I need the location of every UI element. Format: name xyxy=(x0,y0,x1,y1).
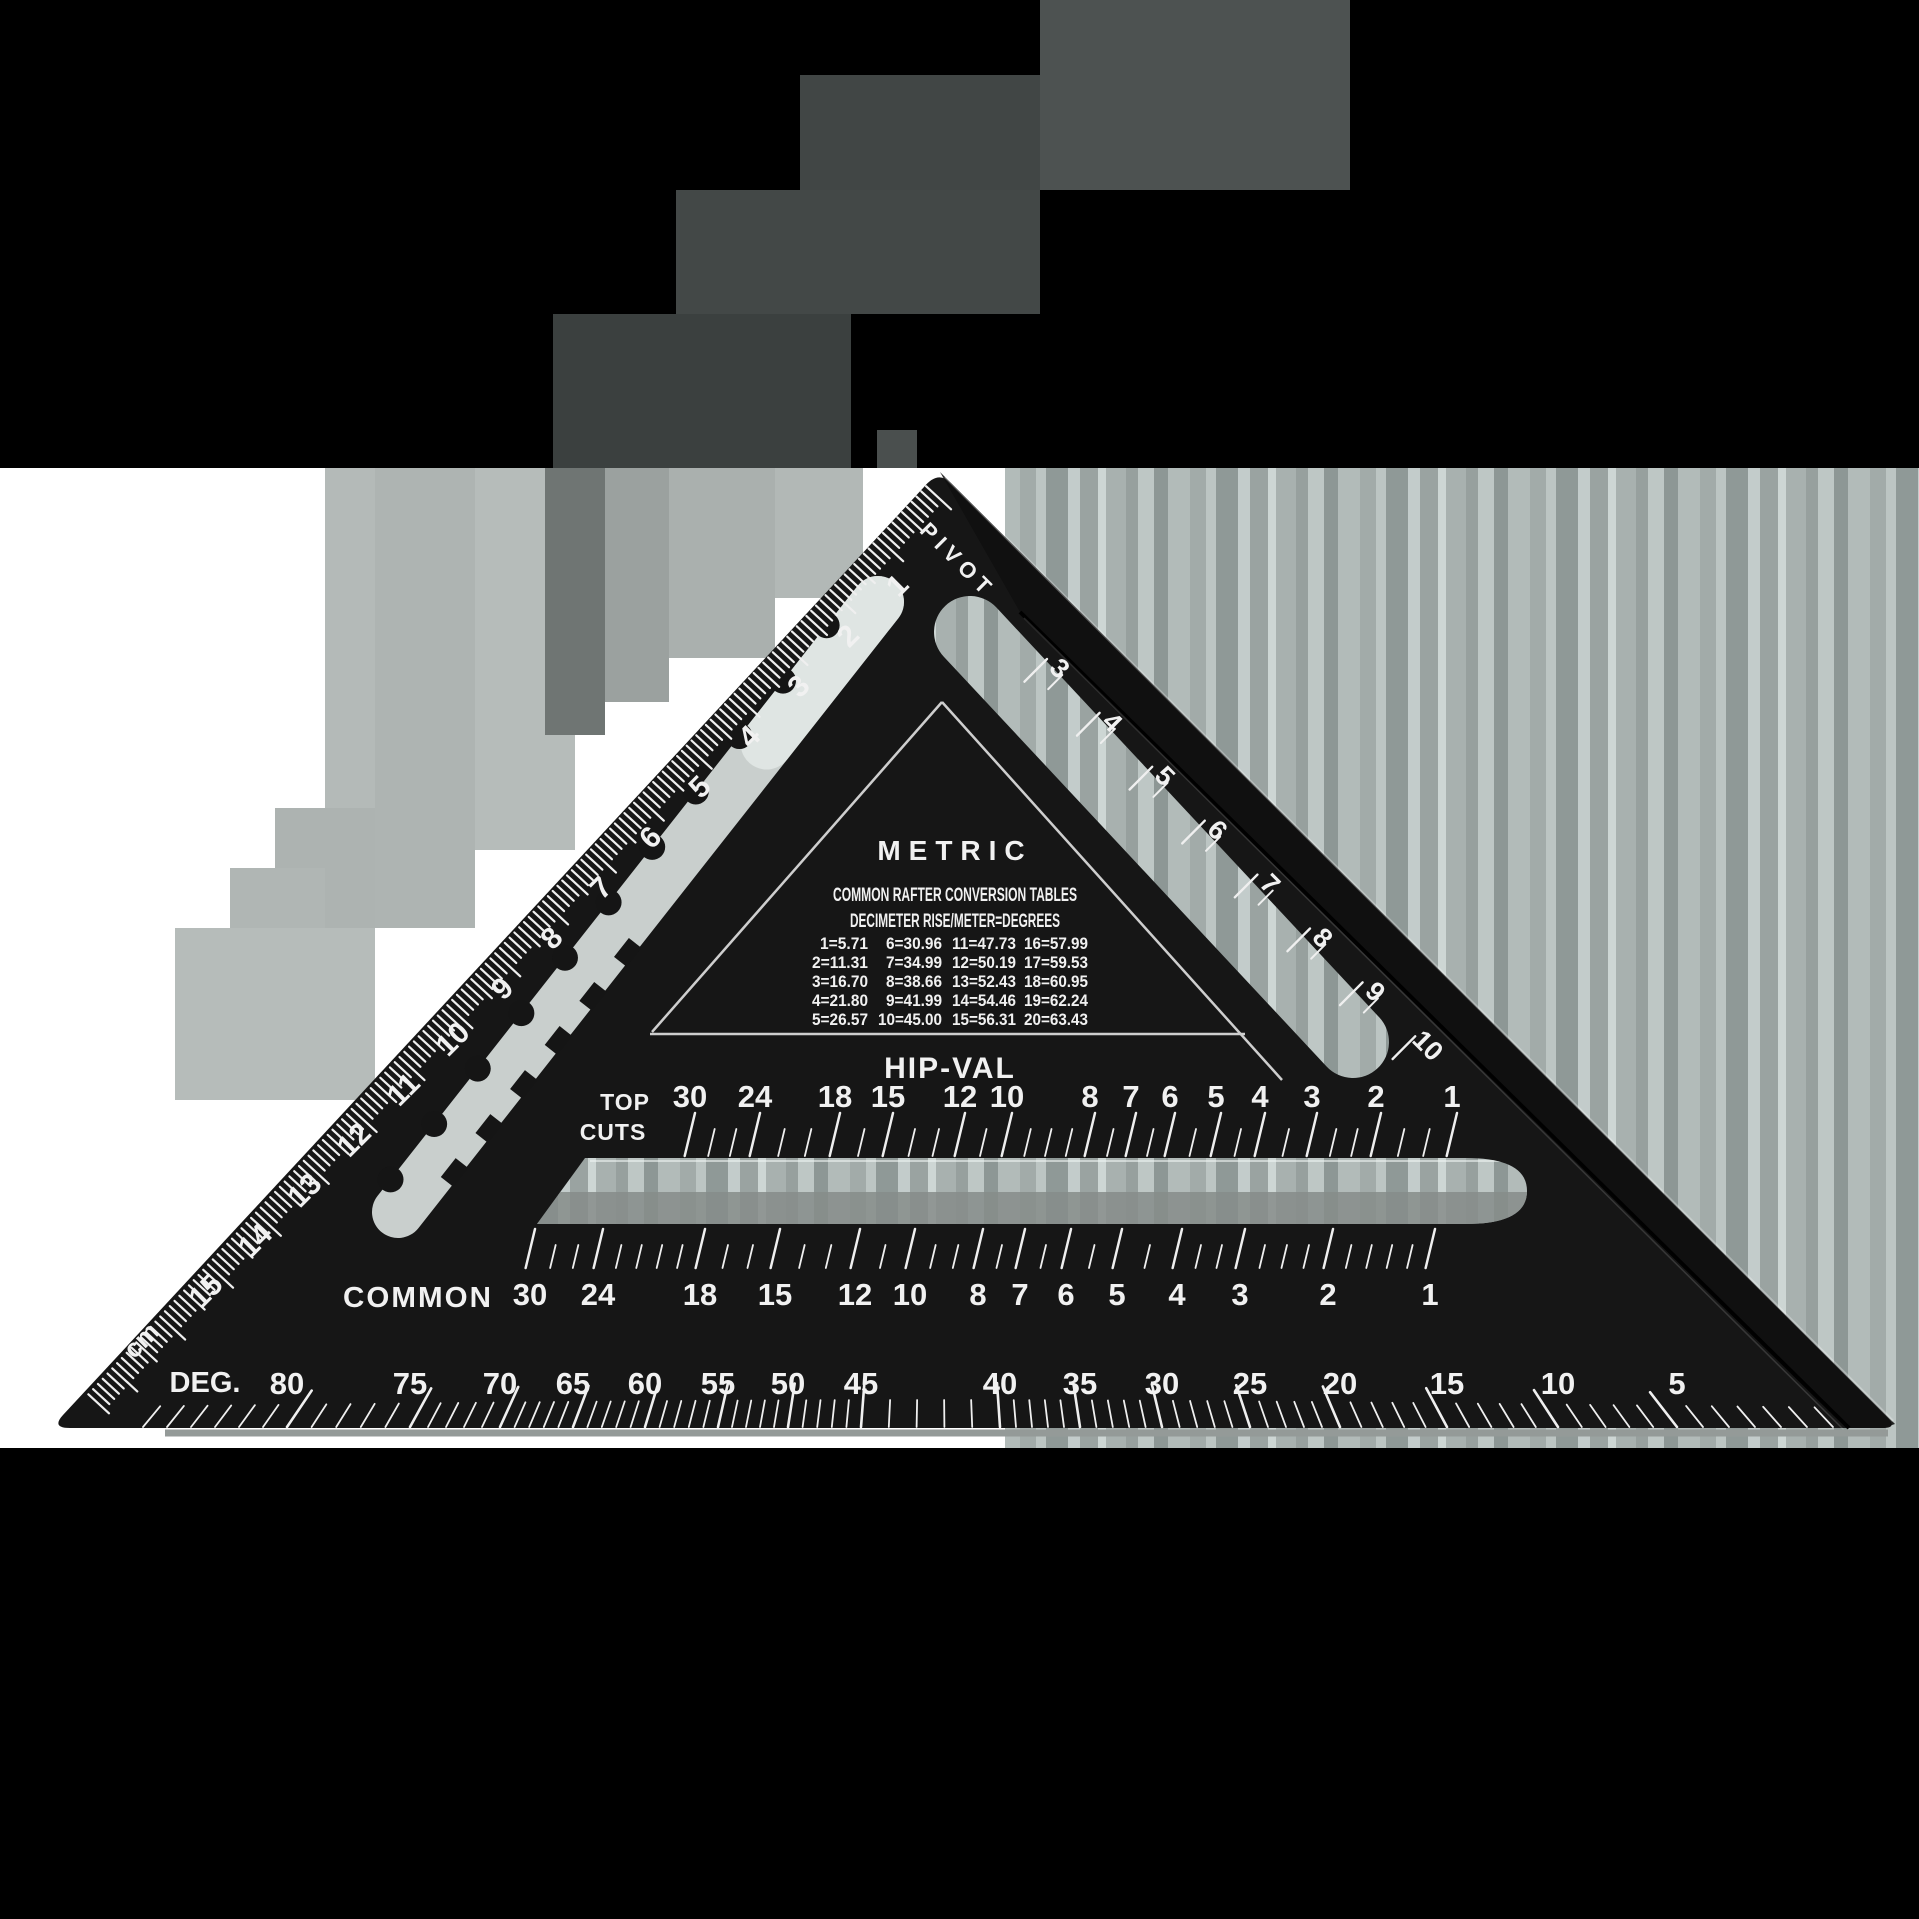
table-cell: 9=41.99 xyxy=(886,991,942,1010)
table-cell: 18=60.95 xyxy=(1024,972,1088,991)
scale-number: 15 xyxy=(758,1277,792,1312)
deg-number: 75 xyxy=(393,1366,427,1401)
scale-number: 7 xyxy=(1122,1079,1139,1114)
rafter-square-photo: 123456789101112131415cmPIVOT345678910MET… xyxy=(0,0,1919,1919)
table-cell: 7=34.99 xyxy=(886,953,942,972)
scale-number: 8 xyxy=(969,1277,986,1312)
scale-number: 6 xyxy=(1161,1079,1178,1114)
scale-number: 4 xyxy=(1168,1277,1186,1312)
table-cell: 2=11.31 xyxy=(812,953,868,972)
scale-number: 2 xyxy=(1367,1079,1384,1114)
scale-number: 24 xyxy=(738,1079,773,1114)
scale-number: 7 xyxy=(1011,1277,1028,1312)
scale-number: 12 xyxy=(838,1277,872,1312)
middle-slot-shadow xyxy=(537,1192,1532,1224)
deg-number: 55 xyxy=(701,1366,735,1401)
scale-number: 5 xyxy=(1108,1277,1125,1312)
scale-number: 2 xyxy=(1319,1277,1336,1312)
scale-number: 12 xyxy=(943,1079,977,1114)
table-cell: 8=38.66 xyxy=(886,972,942,991)
deg-number: 45 xyxy=(844,1366,878,1401)
scale-number: 30 xyxy=(673,1079,707,1114)
table-cell: 3=16.70 xyxy=(812,972,868,991)
table-cell: 16=57.99 xyxy=(1024,934,1088,953)
deg-number: 25 xyxy=(1233,1366,1267,1401)
table-cell: 20=63.43 xyxy=(1024,1010,1088,1029)
deg-number: 30 xyxy=(1145,1366,1179,1401)
table-cell: 4=21.80 xyxy=(812,991,868,1010)
table-cell: 15=56.31 xyxy=(952,1010,1016,1029)
table-cell: 14=54.46 xyxy=(952,991,1016,1010)
deg-number: 60 xyxy=(628,1366,662,1401)
deg-number: 15 xyxy=(1430,1366,1464,1401)
table-cell: 19=62.24 xyxy=(1024,991,1088,1010)
scallop-notch xyxy=(421,1111,447,1137)
panel-subtitle2: DECIMETER RISE/METER=DEGREES xyxy=(850,911,1060,932)
scallop-notch xyxy=(508,1000,534,1026)
deg-number: 70 xyxy=(483,1366,517,1401)
common-label: COMMON xyxy=(343,1282,493,1314)
deg-number: 50 xyxy=(771,1366,805,1401)
scale-number: 10 xyxy=(990,1079,1024,1114)
table-cell: 13=52.43 xyxy=(952,972,1016,991)
table-cell: 6=30.96 xyxy=(886,934,942,953)
scale-number: 10 xyxy=(893,1277,927,1312)
scale-number: 24 xyxy=(581,1277,616,1312)
deg-number: 40 xyxy=(983,1366,1017,1401)
deg-number: 20 xyxy=(1323,1366,1357,1401)
scale-number: 1 xyxy=(1421,1277,1438,1312)
top-cuts-label-2: CUTS xyxy=(580,1119,647,1145)
scale-number: 18 xyxy=(818,1079,852,1114)
table-cell: 10=45.00 xyxy=(878,1010,942,1029)
table-cell: 12=50.19 xyxy=(952,953,1016,972)
scale-number: 4 xyxy=(1251,1079,1269,1114)
scale-number: 8 xyxy=(1081,1079,1098,1114)
scale-number: 1 xyxy=(1443,1079,1460,1114)
deg-number: 80 xyxy=(270,1366,304,1401)
scale-number: 3 xyxy=(1231,1277,1248,1312)
scallop-notch xyxy=(378,1166,404,1192)
product-photo: 123456789101112131415cmPIVOT345678910MET… xyxy=(0,0,1919,1919)
scale-number: 30 xyxy=(513,1277,547,1312)
table-cell: 17=59.53 xyxy=(1024,953,1088,972)
table-cell: 5=26.57 xyxy=(812,1010,868,1029)
table-cell: 11=47.73 xyxy=(952,934,1016,953)
top-cuts-label-1: TOP xyxy=(600,1089,650,1115)
deg-label: DEG. xyxy=(170,1367,241,1399)
panel-title: METRIC xyxy=(877,835,1032,866)
deg-number: 10 xyxy=(1541,1366,1575,1401)
panel-subtitle1: COMMON RAFTER CONVERSION TABLES xyxy=(833,885,1077,906)
scale-number: 6 xyxy=(1057,1277,1074,1312)
table-cell: 1=5.71 xyxy=(820,934,868,953)
deg-number: 35 xyxy=(1063,1366,1097,1401)
scale-number: 18 xyxy=(683,1277,717,1312)
deg-number: 65 xyxy=(556,1366,590,1401)
deg-number: 5 xyxy=(1668,1366,1685,1401)
scale-number: 5 xyxy=(1207,1079,1224,1114)
scallop-notch xyxy=(465,1056,491,1082)
scale-number: 3 xyxy=(1303,1079,1320,1114)
scale-number: 15 xyxy=(871,1079,905,1114)
